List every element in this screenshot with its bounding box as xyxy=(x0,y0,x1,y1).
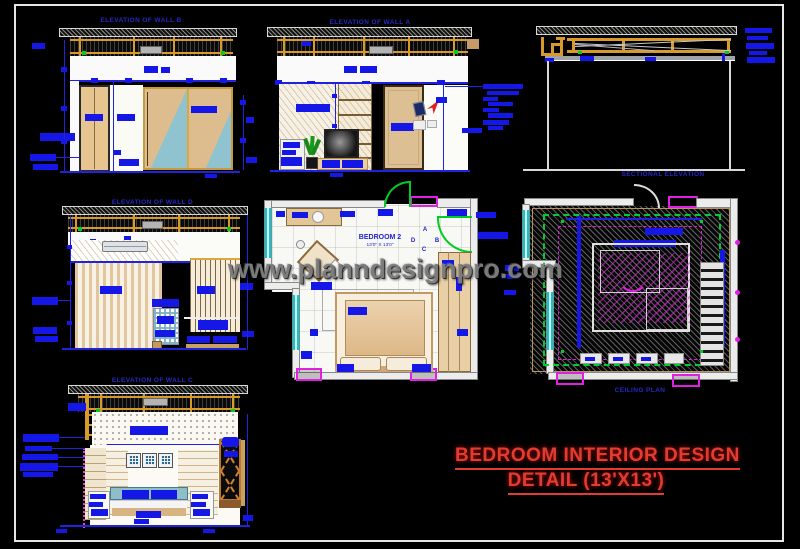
drawer-text xyxy=(193,509,210,516)
drawer-text xyxy=(89,502,103,507)
dim-text xyxy=(56,529,67,533)
drawer-text xyxy=(191,502,206,507)
note-text xyxy=(68,403,86,411)
note-text xyxy=(23,434,59,442)
drawer-text xyxy=(90,494,106,499)
note-text xyxy=(243,515,253,521)
note-text xyxy=(23,472,53,477)
magenta-dotted-line xyxy=(83,448,85,528)
bed-sheet xyxy=(110,500,187,508)
dim-text xyxy=(136,511,161,518)
dim-text xyxy=(151,490,177,499)
drawing-subtitle-block: DETAIL (13'X13') xyxy=(455,470,717,495)
watermark: www.planndesignpro.com xyxy=(228,254,578,290)
note-text xyxy=(20,463,58,471)
dim-text xyxy=(203,529,215,533)
drawing-title-line1: BEDROOM INTERIOR DESIGN xyxy=(455,445,740,470)
leader-line xyxy=(58,457,85,458)
note-text xyxy=(224,451,238,457)
floor-line xyxy=(60,525,250,527)
note-text xyxy=(22,454,58,460)
ceiling-slab xyxy=(68,385,248,394)
drawing-title-block: BEDROOM INTERIOR DESIGN xyxy=(455,445,717,470)
drawing-title-line2: DETAIL (13'X13') xyxy=(508,470,665,495)
dim-vline xyxy=(247,414,248,526)
note-text xyxy=(222,437,239,447)
frame-rail xyxy=(78,408,240,410)
dim-text xyxy=(122,490,149,499)
drawer-text xyxy=(91,509,108,516)
frame-post xyxy=(190,394,192,412)
panel-base xyxy=(219,500,241,508)
dim-text xyxy=(134,519,149,524)
leader-line xyxy=(52,448,85,449)
cove-light-box xyxy=(143,398,168,406)
wall-art xyxy=(127,454,140,467)
leader-line xyxy=(59,437,85,438)
panel-edge xyxy=(241,440,245,506)
frame-post xyxy=(100,394,102,412)
drawer-text xyxy=(192,494,208,499)
note-text xyxy=(25,446,52,451)
leader-line xyxy=(58,466,85,467)
cad-sheet: ELEVATION OF WALL B ELEVATIO xyxy=(0,0,800,549)
view-title: ELEVATION OF WALL C xyxy=(105,377,200,384)
wall-art xyxy=(143,454,156,467)
dim-text xyxy=(130,426,168,435)
wall-art xyxy=(159,454,172,467)
